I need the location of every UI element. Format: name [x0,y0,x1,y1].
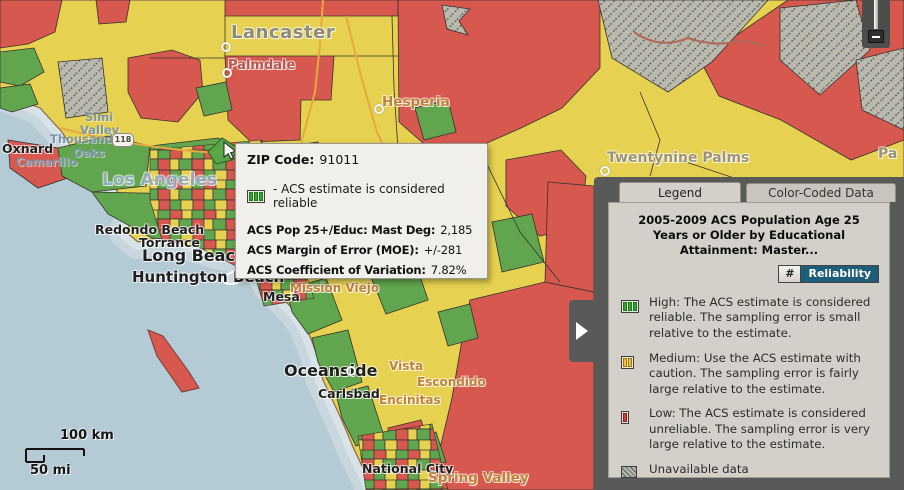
reliability-button[interactable]: Reliability [801,266,878,282]
route-118-shield: 118 [112,133,134,147]
reliability-high-icon [621,300,639,313]
map-application: LancasterPalmdaleHesperiaTwentynine Palm… [0,0,904,490]
popup-stat-value: +/-281 [424,243,462,257]
legend-item-medium: Medium: Use the ACS estimate with cautio… [617,351,881,398]
minus-icon [872,36,880,38]
legend-item-text: Medium: Use the ACS estimate with cautio… [649,351,879,398]
popup-stat-value: 7.82% [431,263,467,277]
popup-reliability-text: - ACS estimate is considered reliable [273,182,476,210]
legend-item-low: Low: The ACS estimate is considered unre… [617,406,881,453]
legend-title: 2005-2009 ACS Population Age 25 Years or… [619,213,879,258]
reliability-toggle: # Reliability [617,265,879,283]
popup-stat-label: ACS Pop 25+/Educ: Mast Deg: [247,223,435,237]
zoom-slider[interactable] [862,0,890,48]
scale-bar: 100 km 50 mi [18,424,128,484]
reliability-low-icon [621,411,629,424]
legend-items: High: The ACS estimate is considered rel… [617,295,881,482]
legend-item-text: Unavailable data [649,462,879,482]
tab-legend[interactable]: Legend [619,182,741,202]
reliability-medium-icon [621,356,634,369]
scale-km-label: 100 km [60,428,114,443]
legend-item-text: Low: The ACS estimate is considered unre… [649,406,879,453]
panel-collapse-handle[interactable] [569,300,594,362]
popup-stat-value: 2,185 [440,223,472,237]
scale-mi-label: 50 mi [30,463,71,478]
feature-info-popup: ZIP Code:91011 - ACS estimate is conside… [235,143,488,279]
reliability-high-icon [247,190,265,203]
arrow-right-icon [576,322,588,340]
legend-item-text: High: The ACS estimate is considered rel… [649,295,879,342]
zoom-slider-track[interactable] [874,0,878,29]
tab-color-coded-data[interactable]: Color-Coded Data [746,183,896,202]
popup-stat-label: ACS Margin of Error (MOE): [247,243,419,257]
legend-panel-body: 2005-2009 ACS Population Age 25 Years or… [608,202,890,478]
legend-panel: Legend Color-Coded Data 2005-2009 ACS Po… [594,177,904,490]
hatch-icon [621,466,637,478]
number-format-button[interactable]: # [779,266,801,282]
legend-item-unavailable: Unavailable data [617,462,881,482]
popup-zip-value: 91011 [319,152,359,167]
popup-zip-label: ZIP Code: [247,152,314,167]
popup-stat-label: ACS Coefficient of Variation: [247,263,426,277]
zoom-out-button[interactable] [868,30,884,43]
legend-item-high: High: The ACS estimate is considered rel… [617,295,881,342]
